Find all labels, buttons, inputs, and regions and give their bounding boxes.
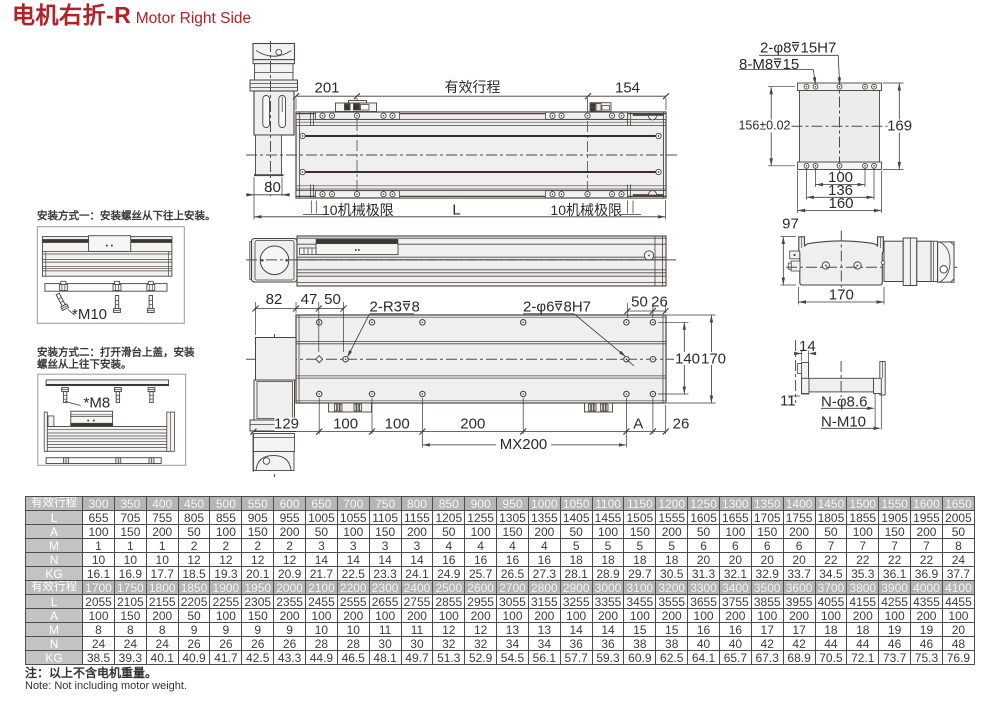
svg-text:安装方式一：安装螺丝从下往上安装。: 安装方式一：安装螺丝从下往上安装。 [37,209,216,222]
svg-text:140: 140 [675,351,700,368]
svg-text:螺丝从上往下安装。: 螺丝从上往下安装。 [37,358,132,371]
svg-text:A: A [633,416,643,433]
svg-text:8-M8: 8-M8 [739,56,773,73]
svg-text:160: 160 [828,195,853,212]
svg-text:8H7: 8H7 [564,299,592,316]
svg-text:47: 47 [301,291,318,308]
svg-text:82: 82 [266,291,283,308]
svg-text:200: 200 [460,416,485,433]
svg-text:26: 26 [673,416,690,433]
svg-text:2-φ6: 2-φ6 [523,299,554,316]
svg-text:170: 170 [829,287,854,304]
svg-text:100: 100 [385,416,410,433]
svg-text:26: 26 [651,294,668,311]
svg-text:有效行程: 有效行程 [445,79,501,95]
svg-text:安装方式二：打开滑台上盖，安装: 安装方式二：打开滑台上盖，安装 [37,346,195,359]
svg-text:80: 80 [264,179,281,196]
svg-text:154: 154 [615,80,640,97]
svg-text:15H7: 15H7 [801,40,837,57]
svg-text:11: 11 [780,393,796,410]
svg-text:2-φ8: 2-φ8 [760,40,791,57]
svg-text:97: 97 [782,216,799,233]
svg-text:100: 100 [333,416,358,433]
svg-text:10机械极限: 10机械极限 [322,202,394,218]
svg-text:10机械极限: 10机械极限 [550,202,622,218]
svg-text:50: 50 [324,291,341,308]
svg-text:2-R3: 2-R3 [370,299,403,316]
svg-text:169: 169 [887,118,912,135]
svg-text:8: 8 [412,299,420,316]
svg-text:170: 170 [701,351,726,368]
svg-text:*M8: *M8 [84,395,111,412]
svg-text:*M10: *M10 [72,306,107,323]
svg-text:50: 50 [631,294,648,311]
svg-text:129: 129 [274,416,299,433]
svg-text:15: 15 [783,56,800,73]
svg-text:MX200: MX200 [500,436,548,453]
svg-text:L: L [452,202,460,219]
svg-text:14: 14 [799,338,816,355]
svg-text:201: 201 [314,80,339,97]
svg-text:156±0.02: 156±0.02 [738,119,790,133]
